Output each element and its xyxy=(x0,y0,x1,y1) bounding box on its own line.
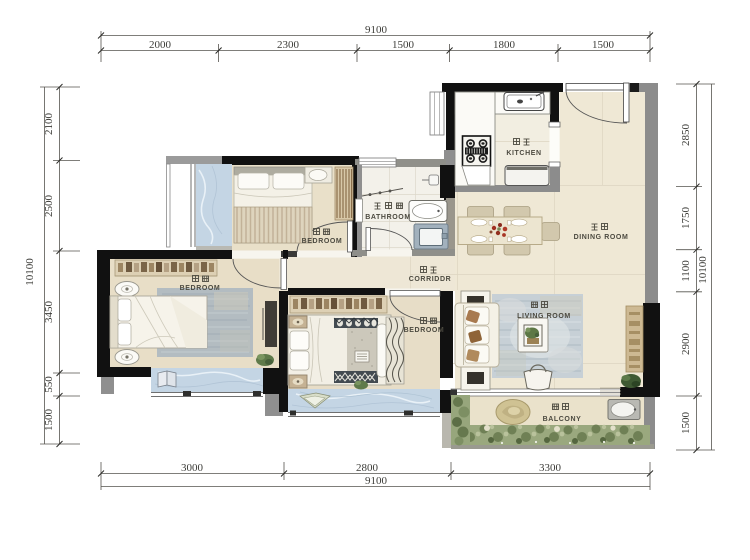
svg-text:1500: 1500 xyxy=(680,412,692,435)
svg-text:2000: 2000 xyxy=(149,39,172,51)
svg-text:1500: 1500 xyxy=(392,39,415,51)
svg-text:3450: 3450 xyxy=(43,301,55,324)
svg-text:KITCHEN: KITCHEN xyxy=(506,150,541,157)
svg-text:LIVING ROOM: LIVING ROOM xyxy=(517,313,571,320)
svg-text:550: 550 xyxy=(43,376,55,393)
svg-text:10100: 10100 xyxy=(697,256,709,284)
svg-text:9100: 9100 xyxy=(365,24,388,36)
svg-text:BATHROOM: BATHROOM xyxy=(365,214,411,221)
svg-text:2500: 2500 xyxy=(43,195,55,218)
svg-text:2300: 2300 xyxy=(277,39,300,51)
svg-text:1100: 1100 xyxy=(680,260,692,282)
svg-text:3000: 3000 xyxy=(181,462,204,474)
svg-text:CORRIDDR: CORRIDDR xyxy=(409,276,452,283)
svg-text:2850: 2850 xyxy=(680,124,692,147)
svg-text:2800: 2800 xyxy=(356,462,379,474)
svg-text:DINING ROOM: DINING ROOM xyxy=(574,234,629,241)
svg-text:10100: 10100 xyxy=(24,258,36,286)
svg-text:9100: 9100 xyxy=(365,475,388,487)
svg-text:BALCONY: BALCONY xyxy=(543,416,582,423)
svg-text:1800: 1800 xyxy=(493,39,516,51)
svg-text:2900: 2900 xyxy=(680,333,692,356)
svg-text:BEDROOM: BEDROOM xyxy=(302,238,343,245)
svg-text:3300: 3300 xyxy=(539,462,562,474)
svg-text:1500: 1500 xyxy=(43,409,55,432)
svg-text:BEDROOM: BEDROOM xyxy=(404,327,445,334)
svg-text:1750: 1750 xyxy=(680,207,692,230)
svg-text:2100: 2100 xyxy=(43,113,55,136)
svg-text:1500: 1500 xyxy=(592,39,615,51)
svg-text:BEDROOM: BEDROOM xyxy=(180,285,221,292)
